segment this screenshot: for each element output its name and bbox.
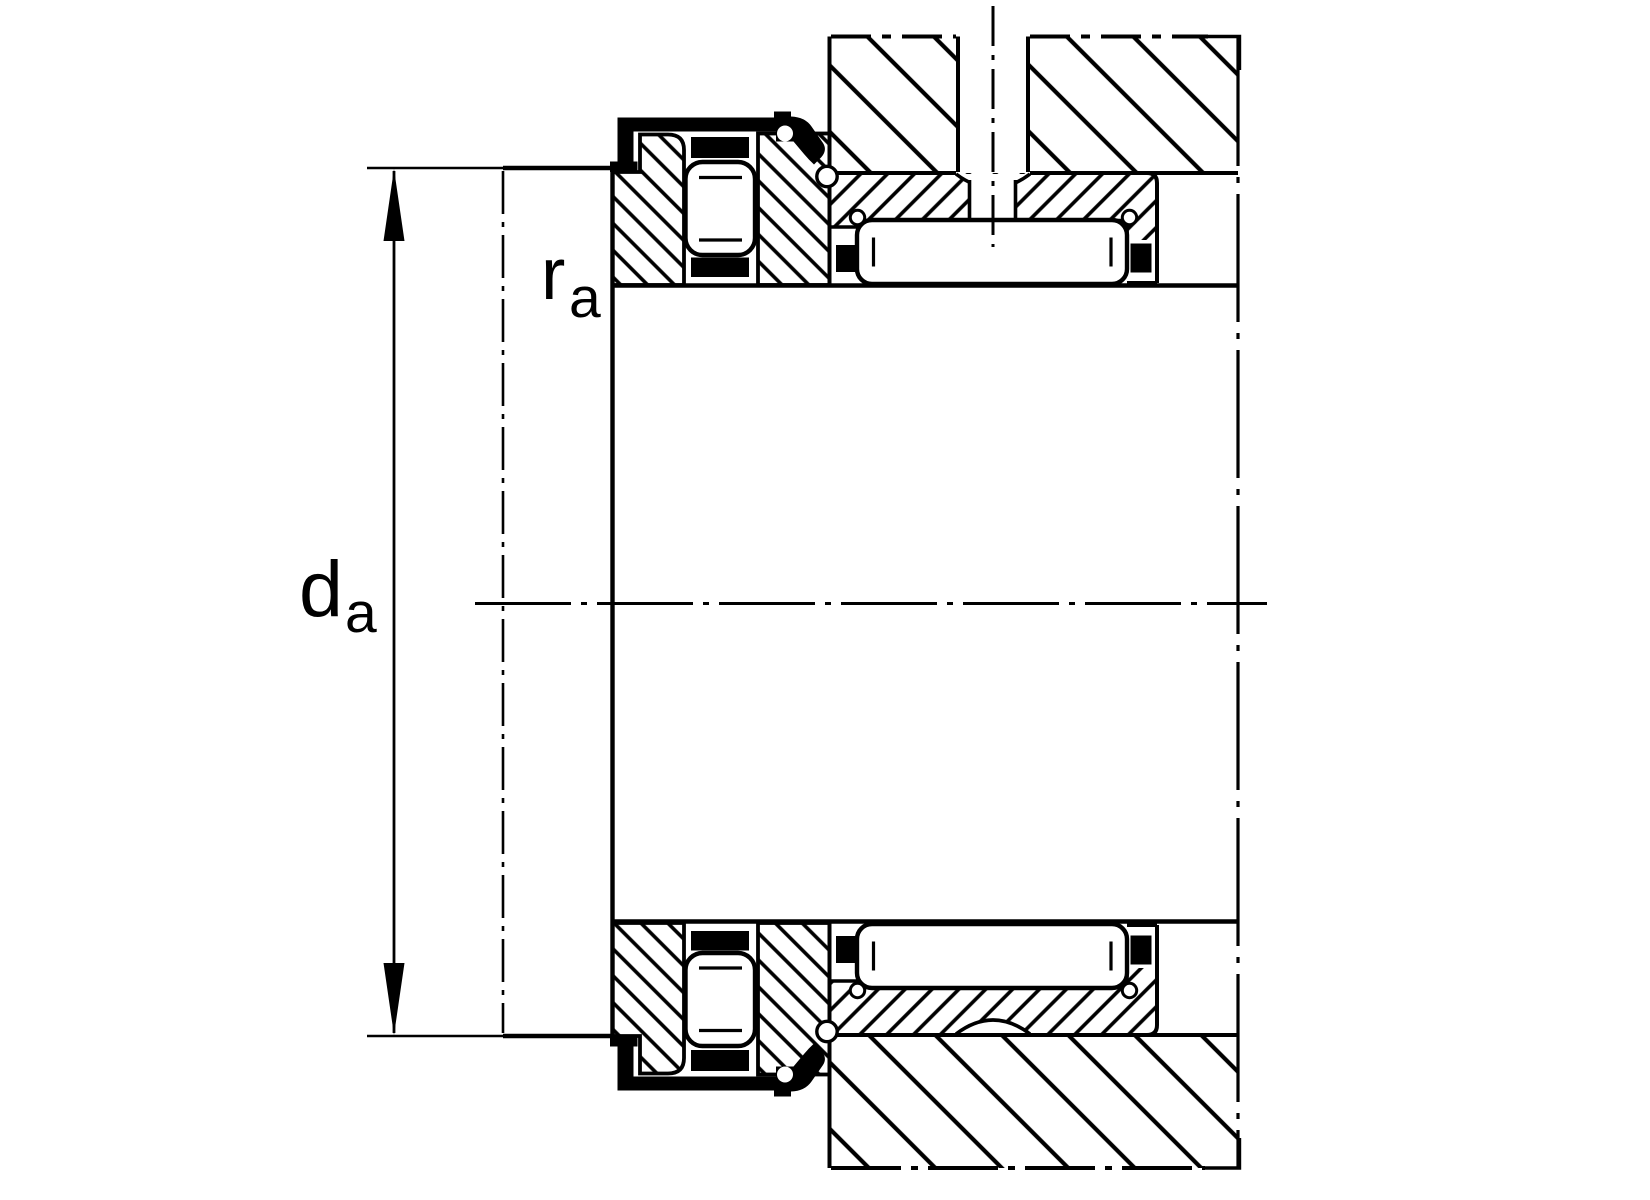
axial-cage-band	[691, 931, 749, 951]
seal-lip-notch	[777, 1067, 793, 1083]
bearing-section-drawing: d a r a	[0, 0, 1650, 1200]
cage-guide-lower-right	[1122, 983, 1136, 997]
o-ring-upper	[817, 166, 837, 186]
arrowhead-up	[384, 169, 405, 241]
cage-guide-lower-left	[850, 983, 864, 997]
axial-roller-lower	[686, 931, 756, 1071]
cage-section-left	[836, 936, 856, 963]
label-ra: r a	[541, 234, 601, 330]
cage-guide-upper-left	[850, 210, 864, 224]
cage-section-right	[1131, 936, 1152, 965]
housing-lower	[830, 1035, 1239, 1168]
seal-lip-notch	[777, 126, 793, 142]
drawing-canvas: d a r a	[0, 0, 1650, 1200]
cage-section-left	[836, 245, 856, 272]
axial-roller-upper	[686, 137, 756, 277]
label-da: d a	[299, 544, 377, 645]
arrowhead-down	[384, 963, 405, 1035]
axial-cage-band	[691, 1050, 749, 1071]
o-ring-lower	[817, 1021, 837, 1041]
axial-cage-band	[691, 137, 749, 158]
cage-guide-upper-right	[1122, 210, 1136, 224]
radial-needle-roller-lower	[836, 924, 1152, 988]
cage-section-right	[1131, 244, 1152, 273]
axial-cage-band	[691, 258, 749, 278]
housing-upper	[830, 37, 1239, 174]
